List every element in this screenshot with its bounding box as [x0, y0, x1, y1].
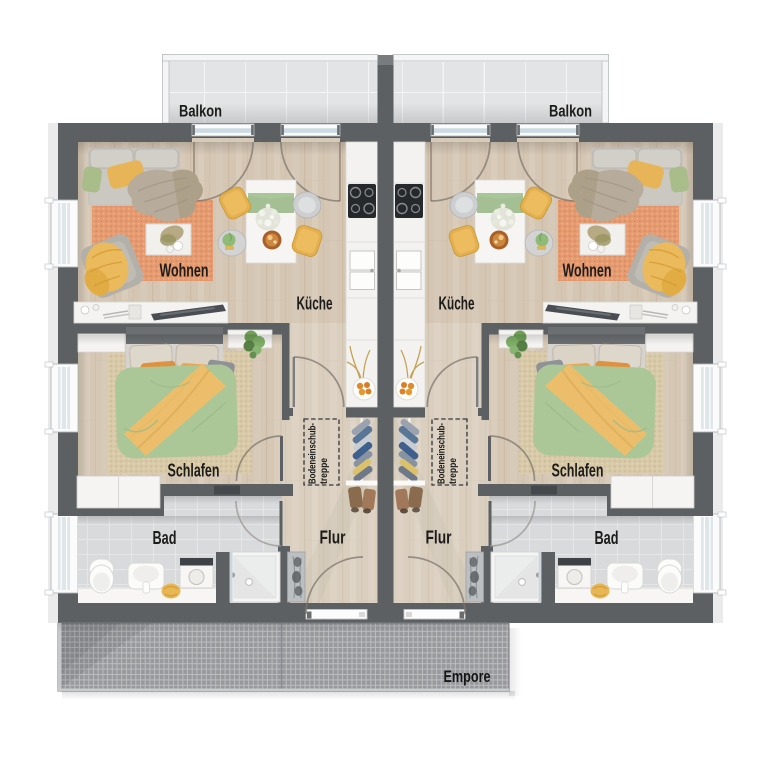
svg-text:Bad: Bad	[153, 528, 177, 548]
svg-text:Wohnen: Wohnen	[563, 261, 612, 281]
svg-text:Flur: Flur	[320, 528, 346, 548]
svg-text:Küche: Küche	[297, 294, 333, 314]
svg-text:Bad: Bad	[595, 528, 619, 548]
svg-text:Wohnen: Wohnen	[160, 261, 209, 281]
svg-text:Schlafen: Schlafen	[168, 461, 220, 481]
svg-text:Balkon: Balkon	[549, 102, 592, 121]
svg-text:Schlafen: Schlafen	[552, 461, 604, 481]
svg-text:Bodeneinschub-: Bodeneinschub-	[436, 423, 448, 484]
svg-text:treppe: treppe	[447, 458, 459, 484]
svg-text:Küche: Küche	[439, 294, 475, 314]
svg-text:treppe: treppe	[318, 458, 330, 484]
svg-text:Balkon: Balkon	[179, 102, 222, 121]
svg-text:Bodeneinschub-: Bodeneinschub-	[307, 423, 319, 484]
svg-text:Empore: Empore	[444, 668, 491, 686]
svg-text:Flur: Flur	[426, 528, 452, 548]
